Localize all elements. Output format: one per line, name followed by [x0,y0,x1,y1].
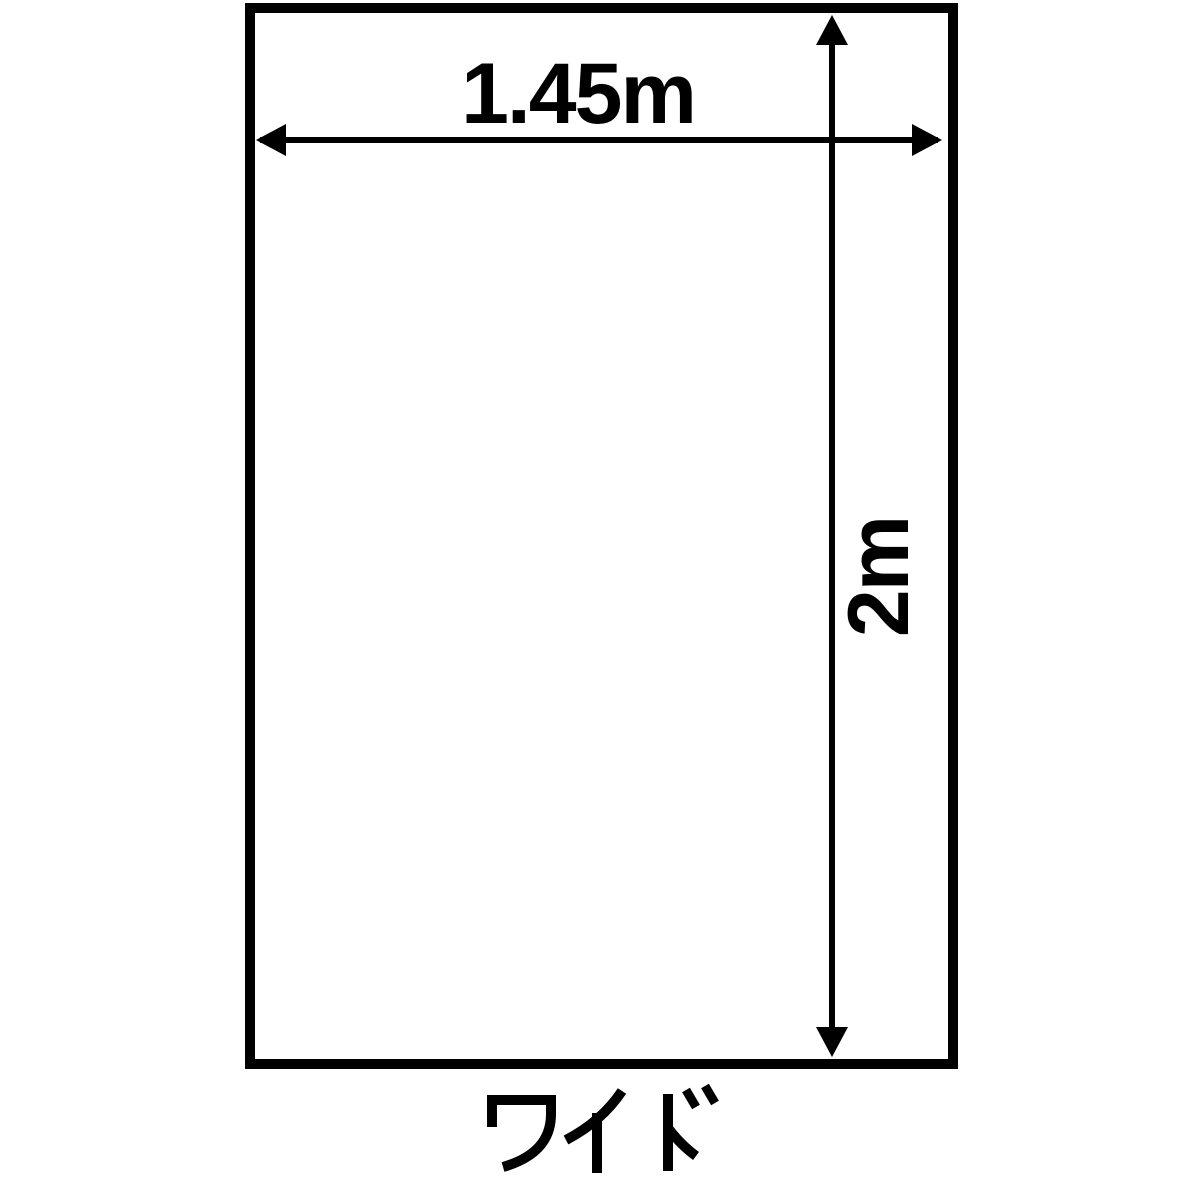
height-arrowhead-top-icon [816,15,848,45]
diagram-canvas [0,0,1200,1200]
caption-label: ワイド [445,1083,757,1179]
width-arrowhead-right-icon [912,124,942,156]
height-dimension-label: 2m [836,517,922,637]
width-arrowhead-left-icon [256,124,286,156]
dimension-diagram: 1.45m 2m ワイド [0,0,1200,1200]
width-dimension-label: 1.45m [461,51,695,137]
height-arrowhead-bottom-icon [816,1027,848,1057]
